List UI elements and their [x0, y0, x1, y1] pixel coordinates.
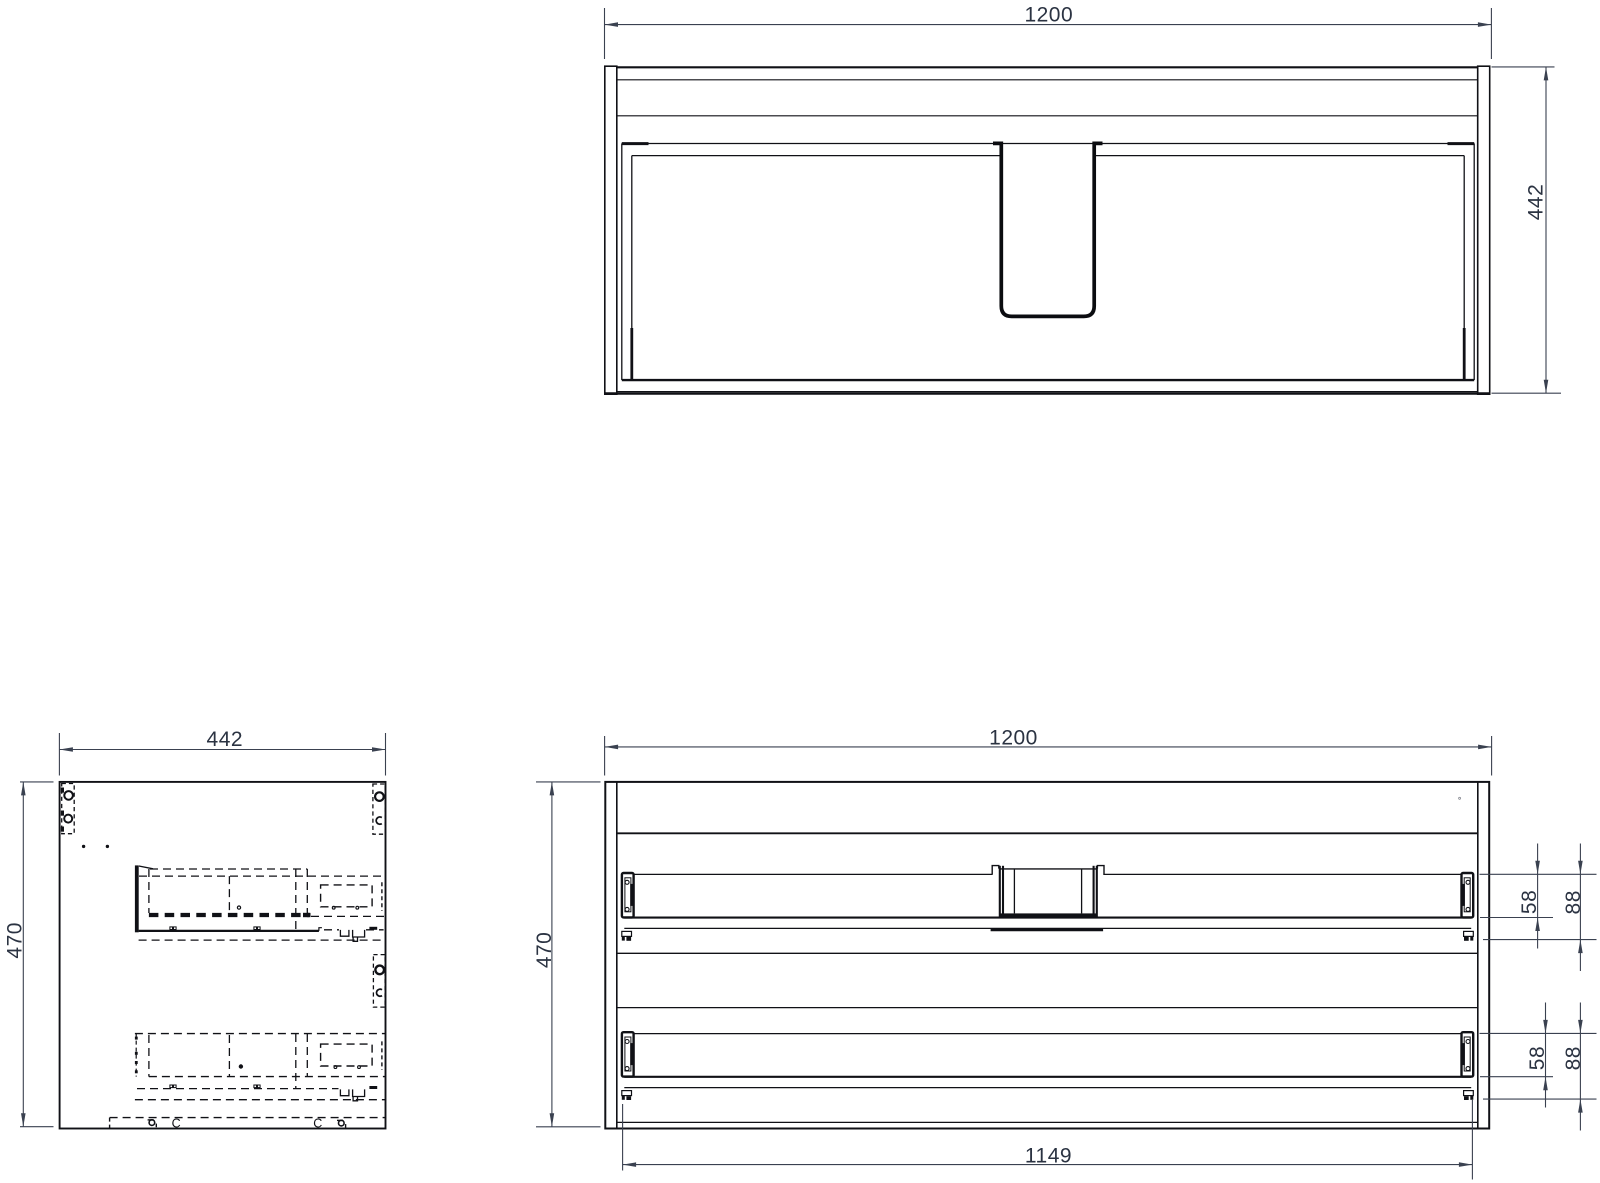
- svg-text:58: 58: [1526, 1046, 1549, 1070]
- svg-text:C: C: [313, 1117, 322, 1131]
- svg-text:470: 470: [533, 932, 556, 969]
- svg-text:88: 88: [1562, 890, 1585, 914]
- svg-text:C: C: [172, 1117, 181, 1131]
- svg-text:470: 470: [4, 922, 27, 959]
- svg-text:442: 442: [207, 728, 244, 751]
- svg-text:1149: 1149: [1025, 1144, 1072, 1167]
- svg-text:88: 88: [1562, 1046, 1585, 1070]
- svg-text:58: 58: [1518, 890, 1541, 914]
- svg-text:1200: 1200: [989, 727, 1038, 750]
- svg-text:1200: 1200: [1024, 4, 1073, 27]
- svg-text:442: 442: [1525, 184, 1548, 221]
